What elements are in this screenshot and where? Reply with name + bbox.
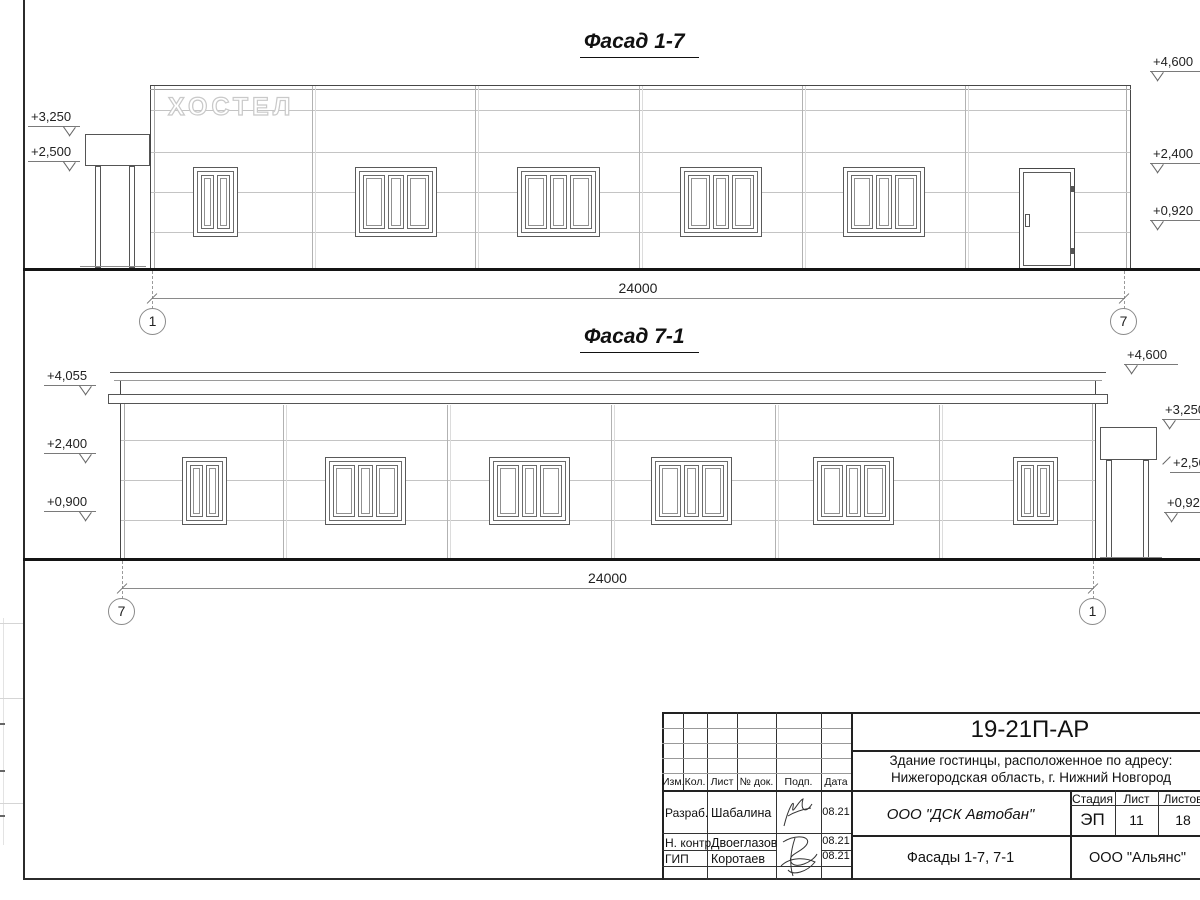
drawing-sheet: Фасад 1-7 Фасад 7-1 ХОСТЕЛ +3,250 +2,500… (0, 0, 1200, 900)
ground-line (23, 558, 1200, 561)
grid-axis-bubble: 1 (1079, 598, 1106, 625)
window-pane (206, 465, 219, 517)
titleblock-line (662, 758, 851, 759)
panel-joint (611, 405, 612, 559)
titleblock-line (662, 833, 851, 834)
window-frame (655, 461, 728, 521)
down-arrow-icon (1151, 72, 1164, 81)
siding-line (151, 192, 1130, 193)
stage-label: Стадия (1070, 792, 1115, 806)
signer-role: Н. контр. (665, 836, 715, 850)
window (193, 167, 238, 237)
margin-line (0, 698, 23, 699)
panel-joint (450, 405, 451, 559)
panel-joint (312, 86, 313, 269)
down-arrow-icon (79, 386, 92, 395)
titleblock-line (851, 835, 1200, 837)
titleblock-line (707, 712, 708, 880)
window-pane (713, 175, 729, 229)
ground-line (23, 268, 1200, 271)
window-pane (570, 175, 592, 229)
window-pane (333, 465, 355, 517)
panel-joint (283, 405, 284, 559)
window-frame (817, 461, 890, 521)
titleblock-line (851, 750, 1200, 752)
panel-joint (614, 405, 615, 559)
sheet-frame-bottom (23, 878, 1200, 880)
panel-joint (805, 86, 806, 269)
wall-edge-line (1126, 86, 1127, 269)
window-pane (363, 175, 385, 229)
facade-title-1-7: Фасад 1-7 (580, 30, 699, 58)
margin-mark (0, 770, 5, 772)
titleblock-line (662, 728, 851, 729)
panel-joint (315, 86, 316, 269)
signature (780, 796, 820, 830)
window-pane (540, 465, 562, 517)
siding-line (121, 520, 1095, 521)
panel-joint (642, 86, 643, 269)
elevation-value: +4,600 (1124, 348, 1178, 365)
column-header: № док. (737, 776, 776, 788)
window-frame (521, 171, 596, 233)
window-frame (684, 171, 758, 233)
margin-mark (0, 815, 5, 817)
elevation-mark: +0,920 (1164, 496, 1200, 513)
window-pane (1021, 465, 1034, 517)
titleblock-line (662, 743, 851, 744)
sign-date: 08.21 (821, 835, 851, 847)
window (1013, 457, 1058, 525)
hostel-sign: ХОСТЕЛ (168, 93, 294, 122)
panel-joint (942, 405, 943, 559)
window-pane (1037, 465, 1050, 517)
window (813, 457, 894, 525)
margin-mark (0, 723, 5, 725)
porch-post (1143, 460, 1149, 560)
window-frame (359, 171, 433, 233)
window-pane (864, 465, 886, 517)
window-frame (1017, 461, 1054, 521)
object-description-line1: Здание гостинцы, расположенное по адресу… (856, 753, 1200, 768)
window-frame (329, 461, 402, 521)
siding-line (121, 480, 1095, 481)
door-leaf (1023, 172, 1071, 266)
wall-edge-line (154, 86, 155, 269)
building-wall (120, 380, 1096, 560)
window-pane (217, 175, 230, 229)
document-number: 19-21П-АР (860, 716, 1200, 744)
elevation-value: +4,600 (1150, 55, 1200, 72)
siding-line (151, 110, 1130, 111)
grid-axis-line (1124, 271, 1125, 309)
contractor-name: ООО "ДСК Автобан" (851, 806, 1070, 823)
down-arrow-icon (1125, 365, 1138, 374)
door-hinge (1071, 248, 1074, 254)
door-handle (1025, 214, 1030, 227)
panel-joint (447, 405, 448, 559)
elevation-mark: +2,400 (44, 437, 96, 454)
down-arrow-icon (63, 127, 76, 136)
down-arrow-icon (1165, 513, 1178, 522)
window (355, 167, 437, 237)
window-pane (684, 465, 700, 517)
window-pane (821, 465, 843, 517)
panel-joint (778, 405, 779, 559)
sheet-frame-left (23, 0, 25, 880)
elevation-value: +3,250 (1162, 403, 1200, 420)
drawing-title: Фасады 1-7, 7-1 (851, 850, 1070, 866)
window-pane (376, 465, 398, 517)
column-header: Изм. (662, 776, 683, 788)
window-pane (851, 175, 873, 229)
dimension-value: 24000 (152, 280, 1124, 296)
window-pane (201, 175, 214, 229)
fascia-band (108, 394, 1108, 404)
signer-name: Двоеглазов (711, 836, 777, 850)
signer-role: Разраб. (665, 806, 708, 820)
porch-post (129, 166, 135, 268)
signature (777, 832, 821, 878)
wall-edge-line (124, 404, 125, 560)
window (843, 167, 925, 237)
panel-joint (802, 86, 803, 269)
porch-canopy (85, 134, 150, 166)
panel-joint (639, 86, 640, 269)
column-header: Подп. (776, 776, 821, 788)
window-pane (497, 465, 519, 517)
door-hinge (1071, 186, 1074, 192)
window (651, 457, 732, 525)
down-arrow-icon (1163, 420, 1176, 429)
window-pane (358, 465, 374, 517)
porch-post (1106, 460, 1112, 560)
elevation-mark: +0,900 (44, 495, 96, 512)
down-arrow-icon (1151, 221, 1164, 230)
sign-date: 08.21 (821, 806, 851, 818)
signer-name: Коротаев (711, 852, 765, 866)
window-pane (688, 175, 710, 229)
sheets-total-label: Листов (1158, 792, 1200, 806)
window-pane (895, 175, 917, 229)
titleblock-border (662, 712, 664, 880)
facade-title-7-1: Фасад 7-1 (580, 325, 699, 353)
window-pane (732, 175, 754, 229)
panel-joint (965, 86, 966, 269)
dimension-line (152, 298, 1124, 299)
elevation-value: +0,920 (1150, 204, 1200, 221)
roof-edge-line (150, 89, 1131, 90)
elevation-mark: +2,500 (28, 145, 80, 162)
window-frame (493, 461, 566, 521)
titleblock-border (662, 712, 1200, 714)
signer-name: Шабалина (711, 806, 771, 820)
elevation-value: +3,250 (28, 110, 80, 127)
window-pane (388, 175, 404, 229)
dimension-line (122, 588, 1093, 589)
signer-role: ГИП (665, 852, 689, 866)
elevation-value: +0,920 (1164, 496, 1200, 513)
object-description-line2: Нижегородская область, г. Нижний Новгоро… (856, 770, 1200, 785)
window (182, 457, 227, 525)
elevation-value: +2,500 (28, 145, 80, 162)
margin-line (0, 623, 23, 624)
elevation-mark: +3,250 (28, 110, 80, 127)
window-pane (846, 465, 862, 517)
grid-axis-bubble: 1 (139, 308, 166, 335)
siding-line (121, 440, 1095, 441)
grid-axis-line (1093, 561, 1094, 599)
elevation-mark: +2,500 (1170, 456, 1200, 473)
titleblock-line (662, 866, 851, 867)
elevation-mark: +0,920 (1150, 204, 1200, 221)
column-header: Кол. (683, 776, 707, 788)
window-frame (186, 461, 223, 521)
down-arrow-icon (1151, 164, 1164, 173)
window-pane (190, 465, 203, 517)
elevation-value: +4,055 (44, 369, 96, 386)
elevation-value: +2,400 (44, 437, 96, 454)
elevation-mark: +4,055 (44, 369, 96, 386)
roof-line (110, 372, 1106, 373)
column-header: Лист (707, 776, 737, 788)
siding-line (151, 152, 1130, 153)
elevation-value: +2,400 (1150, 147, 1200, 164)
window-pane (525, 175, 547, 229)
sheet-number: 11 (1115, 812, 1158, 828)
margin-line (3, 618, 4, 845)
down-arrow-icon (79, 512, 92, 521)
down-arrow-icon (79, 454, 92, 463)
window-pane (407, 175, 429, 229)
roof-line (114, 380, 1102, 381)
elevation-mark: +3,250 (1162, 403, 1200, 420)
building-wall (150, 85, 1131, 270)
window (680, 167, 762, 237)
stage-value: ЭП (1070, 810, 1115, 830)
panel-joint (968, 86, 969, 269)
grid-axis-bubble: 7 (108, 598, 135, 625)
window-frame (197, 171, 234, 233)
dimension-value: 24000 (122, 570, 1093, 586)
window (489, 457, 570, 525)
panel-joint (478, 86, 479, 269)
siding-line (151, 232, 1130, 233)
porch-base-line (80, 266, 146, 267)
porch-post (95, 166, 101, 268)
window-pane (522, 465, 538, 517)
titleblock-line (662, 850, 776, 851)
sheets-total: 18 (1158, 812, 1200, 828)
grid-axis-bubble: 7 (1110, 308, 1137, 335)
window-pane (550, 175, 566, 229)
margin-line (0, 803, 23, 804)
sheet-label: Лист (1115, 792, 1158, 806)
elevation-mark: +2,400 (1150, 147, 1200, 164)
panel-joint (286, 405, 287, 559)
panel-joint (475, 86, 476, 269)
window-pane (659, 465, 681, 517)
window (325, 457, 406, 525)
window-pane (876, 175, 892, 229)
elevation-value: +2,500 (1170, 456, 1200, 473)
organization-name: ООО "Альянс" (1070, 850, 1200, 866)
elevation-mark: +4,600 (1150, 55, 1200, 72)
wall-edge-line (1092, 404, 1093, 560)
column-header: Дата (821, 776, 851, 788)
titleblock-line (662, 773, 851, 774)
elevation-mark: +4,600 (1124, 348, 1178, 365)
panel-joint (775, 405, 776, 559)
window-pane (702, 465, 724, 517)
panel-joint (939, 405, 940, 559)
elevation-value: +0,900 (44, 495, 96, 512)
window (517, 167, 600, 237)
porch-canopy (1100, 427, 1157, 460)
window-frame (847, 171, 921, 233)
down-arrow-icon (63, 162, 76, 171)
sign-date: 08.21 (821, 850, 851, 862)
